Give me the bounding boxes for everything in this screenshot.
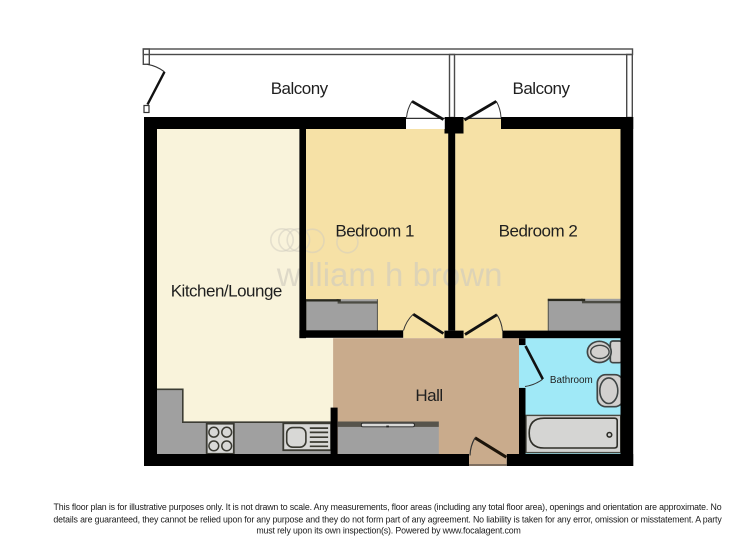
svg-text:Bathroom: Bathroom	[550, 375, 593, 386]
svg-text:william h brown: william h brown	[276, 256, 503, 293]
svg-text:details are guaranteed, they c: details are guaranteed, they cannot be r…	[53, 514, 722, 524]
svg-text:Balcony: Balcony	[513, 79, 571, 98]
svg-text:Balcony: Balcony	[271, 79, 329, 98]
svg-text:Hall: Hall	[415, 386, 442, 405]
svg-text:Kitchen/Lounge: Kitchen/Lounge	[171, 282, 282, 301]
svg-text:This floor plan is for illustr: This floor plan is for illustrative purp…	[54, 502, 722, 512]
svg-text:Bedroom 1: Bedroom 1	[335, 221, 414, 240]
svg-text:Bedroom 2: Bedroom 2	[499, 221, 578, 240]
svg-text:must rely upon its own inspect: must rely upon its own inspection(s). Po…	[256, 526, 520, 536]
